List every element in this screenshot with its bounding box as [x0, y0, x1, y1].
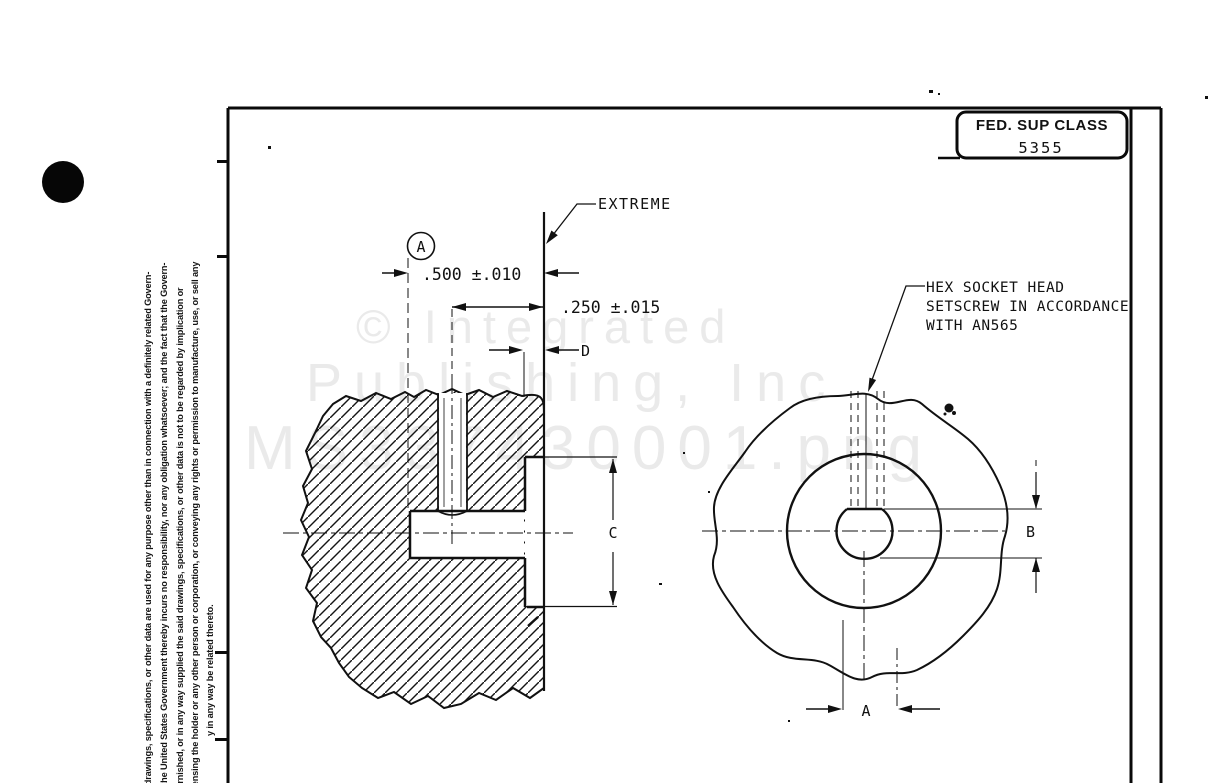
ink-splotch — [944, 404, 957, 416]
extreme-callout: EXTREME — [546, 195, 672, 244]
dimension-250: .250 ±.015 — [452, 298, 660, 382]
hex-setscrew-callout: HEX SOCKET HEAD SETSCREW IN ACCORDANCE W… — [868, 280, 1129, 392]
hex-note-line-3: WITH AN565 — [926, 318, 1018, 334]
side-section-view: A .500 ±.010 .250 ±.015 — [283, 195, 672, 708]
dimension-a-text: A — [861, 702, 870, 720]
bore-slot — [411, 512, 524, 557]
dimension-c: C — [545, 457, 618, 607]
hex-note-line-2: SETSCREW IN ACCORDANCE — [926, 299, 1129, 315]
fed-sup-class-label: FED. SUP CLASS — [976, 117, 1108, 134]
dimension-250-text: .250 ±.015 — [561, 298, 660, 317]
end-view-outline — [713, 394, 1008, 680]
hex-note-line-1: HEX SOCKET HEAD — [926, 280, 1064, 296]
dimension-b-text: B — [1026, 523, 1035, 541]
dimension-500-text: .500 ±.010 — [422, 265, 521, 284]
fed-sup-class-value: 5355 — [1018, 139, 1063, 157]
counterbore-recess — [525, 458, 543, 606]
dimension-b: B — [880, 460, 1042, 593]
extreme-label: EXTREME — [598, 195, 672, 213]
dimension-c-text: C — [608, 524, 617, 542]
engineering-drawing: FED. SUP CLASS 5355 — [0, 0, 1223, 783]
end-view: B A HEX SOCKET HEAD SETSCREW IN ACCORDAN… — [702, 280, 1129, 720]
drawing-sheet: nt drawings, specifications, or other da… — [0, 0, 1223, 783]
dimension-d-text: D — [581, 342, 590, 360]
fed-sup-class-box: FED. SUP CLASS 5355 — [938, 112, 1127, 158]
dimension-d: D — [489, 342, 590, 397]
dimension-a: A — [806, 620, 940, 720]
datum-a-label: A — [416, 238, 425, 256]
setscrew-hidden-lines — [851, 391, 884, 508]
